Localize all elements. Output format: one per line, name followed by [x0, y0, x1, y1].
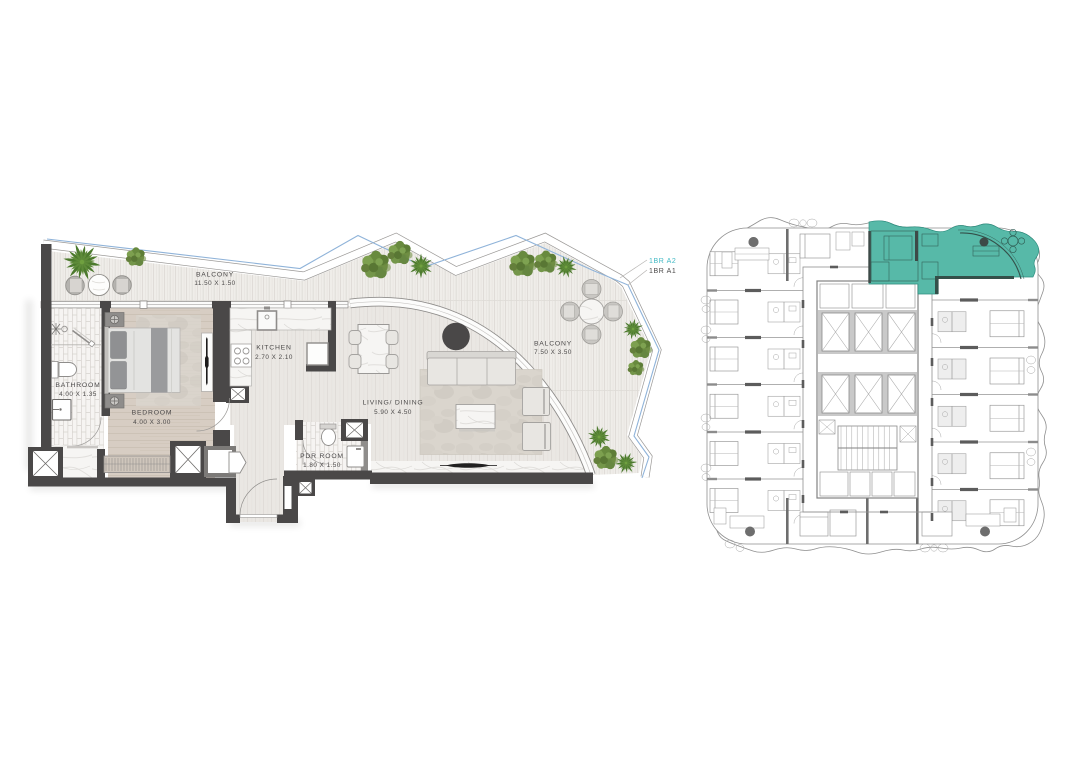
svg-text:LIVING/ DINING: LIVING/ DINING [362, 400, 423, 407]
svg-text:11.50 X 1.50: 11.50 X 1.50 [194, 280, 235, 287]
svg-text:1BR A1: 1BR A1 [649, 268, 676, 275]
svg-text:PDR ROOM: PDR ROOM [300, 453, 344, 460]
svg-text:BALCONY: BALCONY [196, 272, 234, 279]
svg-text:BATHROOM: BATHROOM [55, 382, 100, 389]
svg-text:4.00 X 3.00: 4.00 X 3.00 [133, 419, 171, 426]
svg-text:5.90 X 4.50: 5.90 X 4.50 [374, 409, 412, 416]
svg-text:1.80 X 1.50: 1.80 X 1.50 [303, 462, 341, 469]
svg-text:KITCHEN: KITCHEN [256, 345, 291, 352]
svg-text:BEDROOM: BEDROOM [132, 410, 173, 417]
svg-text:2.70 X 2.10: 2.70 X 2.10 [255, 354, 293, 361]
svg-text:1BR A2: 1BR A2 [649, 258, 676, 265]
svg-text:4.00 X 1.35: 4.00 X 1.35 [59, 391, 97, 398]
svg-text:7.50 X 3.50: 7.50 X 3.50 [534, 349, 572, 356]
svg-text:BALCONY: BALCONY [534, 341, 572, 348]
